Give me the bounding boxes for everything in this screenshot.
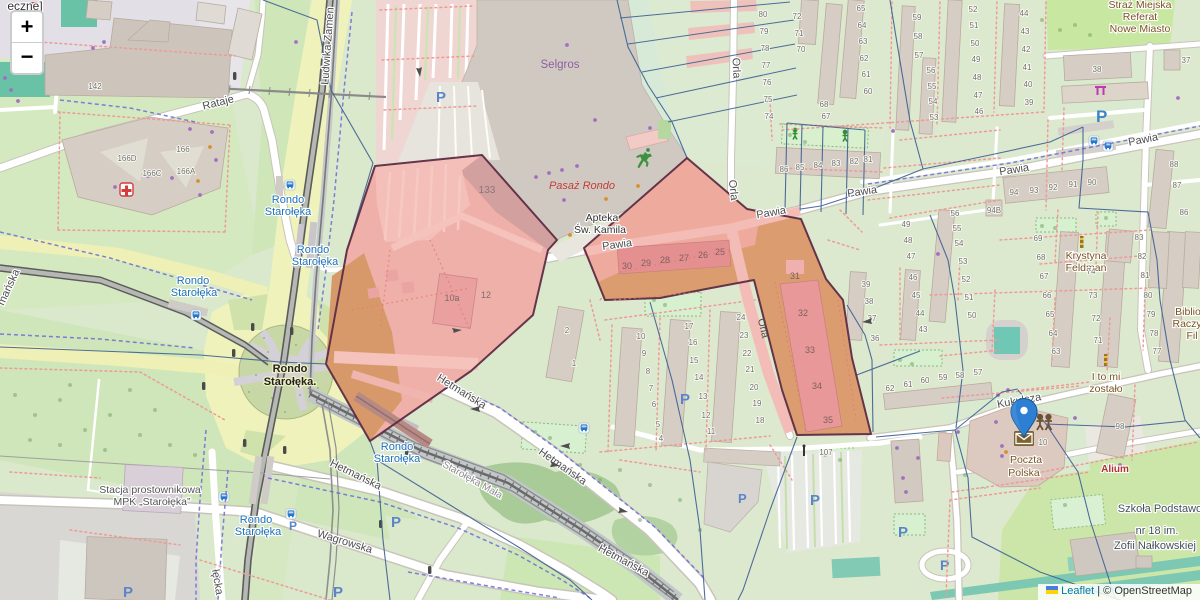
svg-text:67: 67 xyxy=(1040,272,1049,281)
svg-text:25: 25 xyxy=(715,247,725,257)
svg-text:Rondo: Rondo xyxy=(272,194,304,206)
svg-text:21: 21 xyxy=(746,365,755,374)
svg-text:41: 41 xyxy=(1023,63,1032,72)
svg-text:83: 83 xyxy=(832,159,841,168)
svg-text:54: 54 xyxy=(929,97,938,106)
svg-text:Stacja prostownikowa: Stacja prostownikowa xyxy=(99,484,201,496)
svg-text:43: 43 xyxy=(919,325,928,334)
svg-text:79: 79 xyxy=(760,27,769,36)
svg-text:1: 1 xyxy=(572,359,577,368)
svg-text:58: 58 xyxy=(956,371,965,380)
svg-text:90: 90 xyxy=(1088,178,1097,187)
svg-text:81: 81 xyxy=(864,155,873,164)
svg-text:48: 48 xyxy=(973,73,982,82)
svg-text:Alium: Alium xyxy=(1101,464,1129,475)
svg-text:Rondo: Rondo xyxy=(240,514,272,526)
svg-text:98: 98 xyxy=(1116,422,1125,431)
svg-text:50: 50 xyxy=(971,39,980,48)
svg-text:94B: 94B xyxy=(987,206,1001,215)
svg-text:62: 62 xyxy=(886,384,895,393)
svg-text:31: 31 xyxy=(790,271,800,281)
svg-text:60: 60 xyxy=(864,87,873,96)
svg-text:10: 10 xyxy=(637,332,646,341)
svg-text:Orla: Orla xyxy=(726,179,740,202)
svg-text:6: 6 xyxy=(652,400,657,409)
svg-text:P: P xyxy=(123,584,133,600)
svg-text:zostało: zostało xyxy=(1089,383,1122,395)
svg-text:51: 51 xyxy=(965,293,974,302)
svg-text:72: 72 xyxy=(793,12,802,21)
svg-text:56: 56 xyxy=(927,66,936,75)
svg-text:78: 78 xyxy=(761,44,770,53)
svg-text:59: 59 xyxy=(913,13,922,22)
svg-text:63: 63 xyxy=(859,37,868,46)
svg-text:76: 76 xyxy=(763,78,772,87)
svg-text:Raczyń: Raczyń xyxy=(1172,318,1200,330)
svg-text:71: 71 xyxy=(1094,336,1103,345)
svg-text:47: 47 xyxy=(974,91,983,100)
svg-text:94: 94 xyxy=(1010,188,1019,197)
svg-text:78: 78 xyxy=(1150,329,1159,338)
svg-text:9: 9 xyxy=(642,349,647,358)
svg-text:49: 49 xyxy=(972,55,981,64)
svg-text:11: 11 xyxy=(707,427,716,436)
svg-text:133: 133 xyxy=(479,185,496,196)
svg-text:50: 50 xyxy=(968,311,977,320)
svg-text:56: 56 xyxy=(951,209,960,218)
svg-text:40: 40 xyxy=(1024,80,1033,89)
svg-text:37: 37 xyxy=(1182,56,1191,65)
svg-text:55: 55 xyxy=(953,224,962,233)
svg-text:57: 57 xyxy=(974,368,983,377)
svg-text:44: 44 xyxy=(916,309,925,318)
svg-text:22: 22 xyxy=(743,349,752,358)
svg-text:MPK „Starołęka”: MPK „Starołęka” xyxy=(113,496,191,508)
svg-text:72: 72 xyxy=(1092,314,1101,323)
svg-text:80: 80 xyxy=(1144,291,1153,300)
svg-text:23: 23 xyxy=(740,331,749,340)
svg-text:12: 12 xyxy=(702,411,711,420)
svg-text:46: 46 xyxy=(975,107,984,116)
svg-text:15: 15 xyxy=(690,356,699,365)
svg-text:65: 65 xyxy=(857,4,866,13)
svg-text:52: 52 xyxy=(962,275,971,284)
svg-text:64: 64 xyxy=(858,21,867,30)
svg-text:80: 80 xyxy=(759,10,768,19)
svg-text:45: 45 xyxy=(912,291,921,300)
svg-text:49: 49 xyxy=(902,220,911,229)
svg-text:Starołęka.: Starołęka. xyxy=(264,376,317,388)
svg-text:10a: 10a xyxy=(444,293,459,303)
svg-text:18: 18 xyxy=(756,416,765,425)
svg-text:71: 71 xyxy=(795,29,804,38)
svg-text:51: 51 xyxy=(970,21,979,30)
svg-text:166A: 166A xyxy=(177,167,196,176)
svg-text:29: 29 xyxy=(641,258,651,268)
svg-text:10: 10 xyxy=(1039,438,1048,447)
svg-text:I to mi: I to mi xyxy=(1092,371,1121,383)
svg-text:74: 74 xyxy=(1087,267,1096,276)
svg-text:82: 82 xyxy=(850,157,859,166)
svg-text:67: 67 xyxy=(822,112,831,121)
svg-text:107: 107 xyxy=(819,448,833,457)
svg-text:34: 34 xyxy=(812,381,822,391)
svg-text:36: 36 xyxy=(871,334,880,343)
svg-text:166: 166 xyxy=(176,145,190,154)
svg-text:12: 12 xyxy=(481,290,491,300)
svg-text:64: 64 xyxy=(1049,329,1058,338)
svg-text:39: 39 xyxy=(1025,98,1034,107)
svg-text:38: 38 xyxy=(1093,65,1102,74)
svg-text:Starołęka: Starołęka xyxy=(292,256,339,268)
svg-text:P: P xyxy=(436,89,446,106)
svg-text:26: 26 xyxy=(698,250,708,260)
svg-text:77: 77 xyxy=(1153,347,1162,356)
svg-text:166C: 166C xyxy=(142,169,161,178)
svg-text:Selgros: Selgros xyxy=(541,59,580,71)
svg-text:P: P xyxy=(810,492,820,509)
svg-text:142: 142 xyxy=(88,82,102,91)
svg-text:5: 5 xyxy=(656,420,661,429)
svg-text:73: 73 xyxy=(1089,291,1098,300)
svg-text:53: 53 xyxy=(930,113,939,122)
svg-text:Orla: Orla xyxy=(729,57,742,79)
svg-text:70: 70 xyxy=(797,45,806,54)
svg-text:2: 2 xyxy=(565,326,570,335)
svg-text:44: 44 xyxy=(1020,9,1029,18)
svg-text:Rondo: Rondo xyxy=(177,275,209,287)
svg-text:87: 87 xyxy=(1173,181,1182,190)
svg-text:75: 75 xyxy=(764,95,773,104)
svg-text:17: 17 xyxy=(685,322,694,331)
svg-text:Straż Miejska: Straż Miejska xyxy=(1108,0,1171,11)
svg-text:68: 68 xyxy=(820,100,829,109)
svg-text:Polska: Polska xyxy=(1008,467,1040,479)
svg-text:Fil: Fil xyxy=(1186,330,1197,342)
svg-text:Poczta: Poczta xyxy=(1010,454,1042,466)
svg-text:86: 86 xyxy=(780,165,789,174)
svg-text:93: 93 xyxy=(1030,186,1039,195)
svg-text:92: 92 xyxy=(1049,183,1058,192)
svg-text:81: 81 xyxy=(1141,271,1150,280)
svg-text:35: 35 xyxy=(823,415,833,425)
svg-text:66: 66 xyxy=(1043,291,1052,300)
svg-text:33: 33 xyxy=(805,345,815,355)
svg-text:P: P xyxy=(289,519,297,533)
svg-text:85: 85 xyxy=(796,163,805,172)
svg-text:Biblio: Biblio xyxy=(1175,306,1200,318)
svg-text:4: 4 xyxy=(659,434,664,443)
svg-text:58: 58 xyxy=(914,32,923,41)
svg-text:P: P xyxy=(391,514,401,531)
svg-text:P: P xyxy=(898,524,908,541)
svg-text:53: 53 xyxy=(959,257,968,266)
svg-text:77: 77 xyxy=(762,61,771,70)
svg-text:74: 74 xyxy=(765,112,774,121)
svg-text:8: 8 xyxy=(646,367,651,376)
svg-text:82: 82 xyxy=(1138,252,1147,261)
svg-text:24: 24 xyxy=(737,313,746,322)
svg-text:Starołęka: Starołęka xyxy=(374,453,421,465)
svg-text:16: 16 xyxy=(689,338,698,347)
svg-text:55: 55 xyxy=(928,82,937,91)
svg-text:Nowe Miasto: Nowe Miasto xyxy=(1110,23,1171,35)
svg-text:Starołęka: Starołęka xyxy=(171,287,218,299)
svg-text:13: 13 xyxy=(699,392,708,401)
svg-text:Rondo: Rondo xyxy=(297,244,329,256)
svg-text:48: 48 xyxy=(904,236,913,245)
svg-text:86: 86 xyxy=(1180,208,1189,217)
svg-text:61: 61 xyxy=(904,380,913,389)
svg-text:Pasaż Rondo: Pasaż Rondo xyxy=(549,180,615,192)
svg-text:14: 14 xyxy=(695,373,704,382)
svg-text:61: 61 xyxy=(862,70,871,79)
svg-text:38: 38 xyxy=(865,297,874,306)
svg-text:28: 28 xyxy=(660,255,670,265)
svg-text:46: 46 xyxy=(909,273,918,282)
svg-text:Krystyna: Krystyna xyxy=(1066,250,1107,262)
svg-text:P: P xyxy=(1096,107,1107,126)
svg-text:57: 57 xyxy=(915,51,924,60)
svg-text:30: 30 xyxy=(622,261,632,271)
svg-text:39: 39 xyxy=(862,280,871,289)
svg-text:P: P xyxy=(333,584,343,600)
svg-text:47: 47 xyxy=(907,252,916,261)
svg-text:79: 79 xyxy=(1147,310,1156,319)
svg-text:Referat: Referat xyxy=(1123,11,1158,23)
svg-text:Szkoła Podstawowa: Szkoła Podstawowa xyxy=(1118,503,1200,515)
svg-text:Apteka: Apteka xyxy=(586,212,619,224)
svg-text:Rondo: Rondo xyxy=(381,441,413,453)
svg-text:Zofii Nałkowskiej: Zofii Nałkowskiej xyxy=(1114,540,1196,552)
svg-text:88: 88 xyxy=(1170,160,1179,169)
svg-text:69: 69 xyxy=(1034,234,1043,243)
svg-text:Św. Kamila: Św. Kamila xyxy=(574,223,626,236)
svg-text:32: 32 xyxy=(798,308,808,318)
svg-text:84: 84 xyxy=(814,161,823,170)
svg-text:52: 52 xyxy=(969,5,978,14)
svg-text:60: 60 xyxy=(921,376,930,385)
svg-text:65: 65 xyxy=(1046,310,1055,319)
svg-text:27: 27 xyxy=(679,253,689,263)
svg-text:19: 19 xyxy=(753,399,762,408)
svg-text:59: 59 xyxy=(939,373,948,382)
svg-text:83: 83 xyxy=(1135,233,1144,242)
svg-text:43: 43 xyxy=(1021,27,1030,36)
svg-text:166D: 166D xyxy=(117,154,136,163)
svg-text:68: 68 xyxy=(1037,253,1046,262)
svg-text:Rondo: Rondo xyxy=(273,363,308,375)
svg-text:7: 7 xyxy=(649,384,654,393)
svg-text:54: 54 xyxy=(955,239,964,248)
svg-text:nr 18 im.: nr 18 im. xyxy=(1136,525,1179,537)
svg-text:91: 91 xyxy=(1069,180,1078,189)
svg-text:P: P xyxy=(738,491,747,506)
svg-text:P: P xyxy=(680,391,690,408)
svg-text:Starołęka: Starołęka xyxy=(235,526,282,538)
svg-text:63: 63 xyxy=(1052,347,1061,356)
svg-text:20: 20 xyxy=(750,383,759,392)
svg-text:62: 62 xyxy=(860,54,869,63)
svg-text:Starołęka: Starołęka xyxy=(265,206,312,218)
svg-text:42: 42 xyxy=(1022,45,1031,54)
